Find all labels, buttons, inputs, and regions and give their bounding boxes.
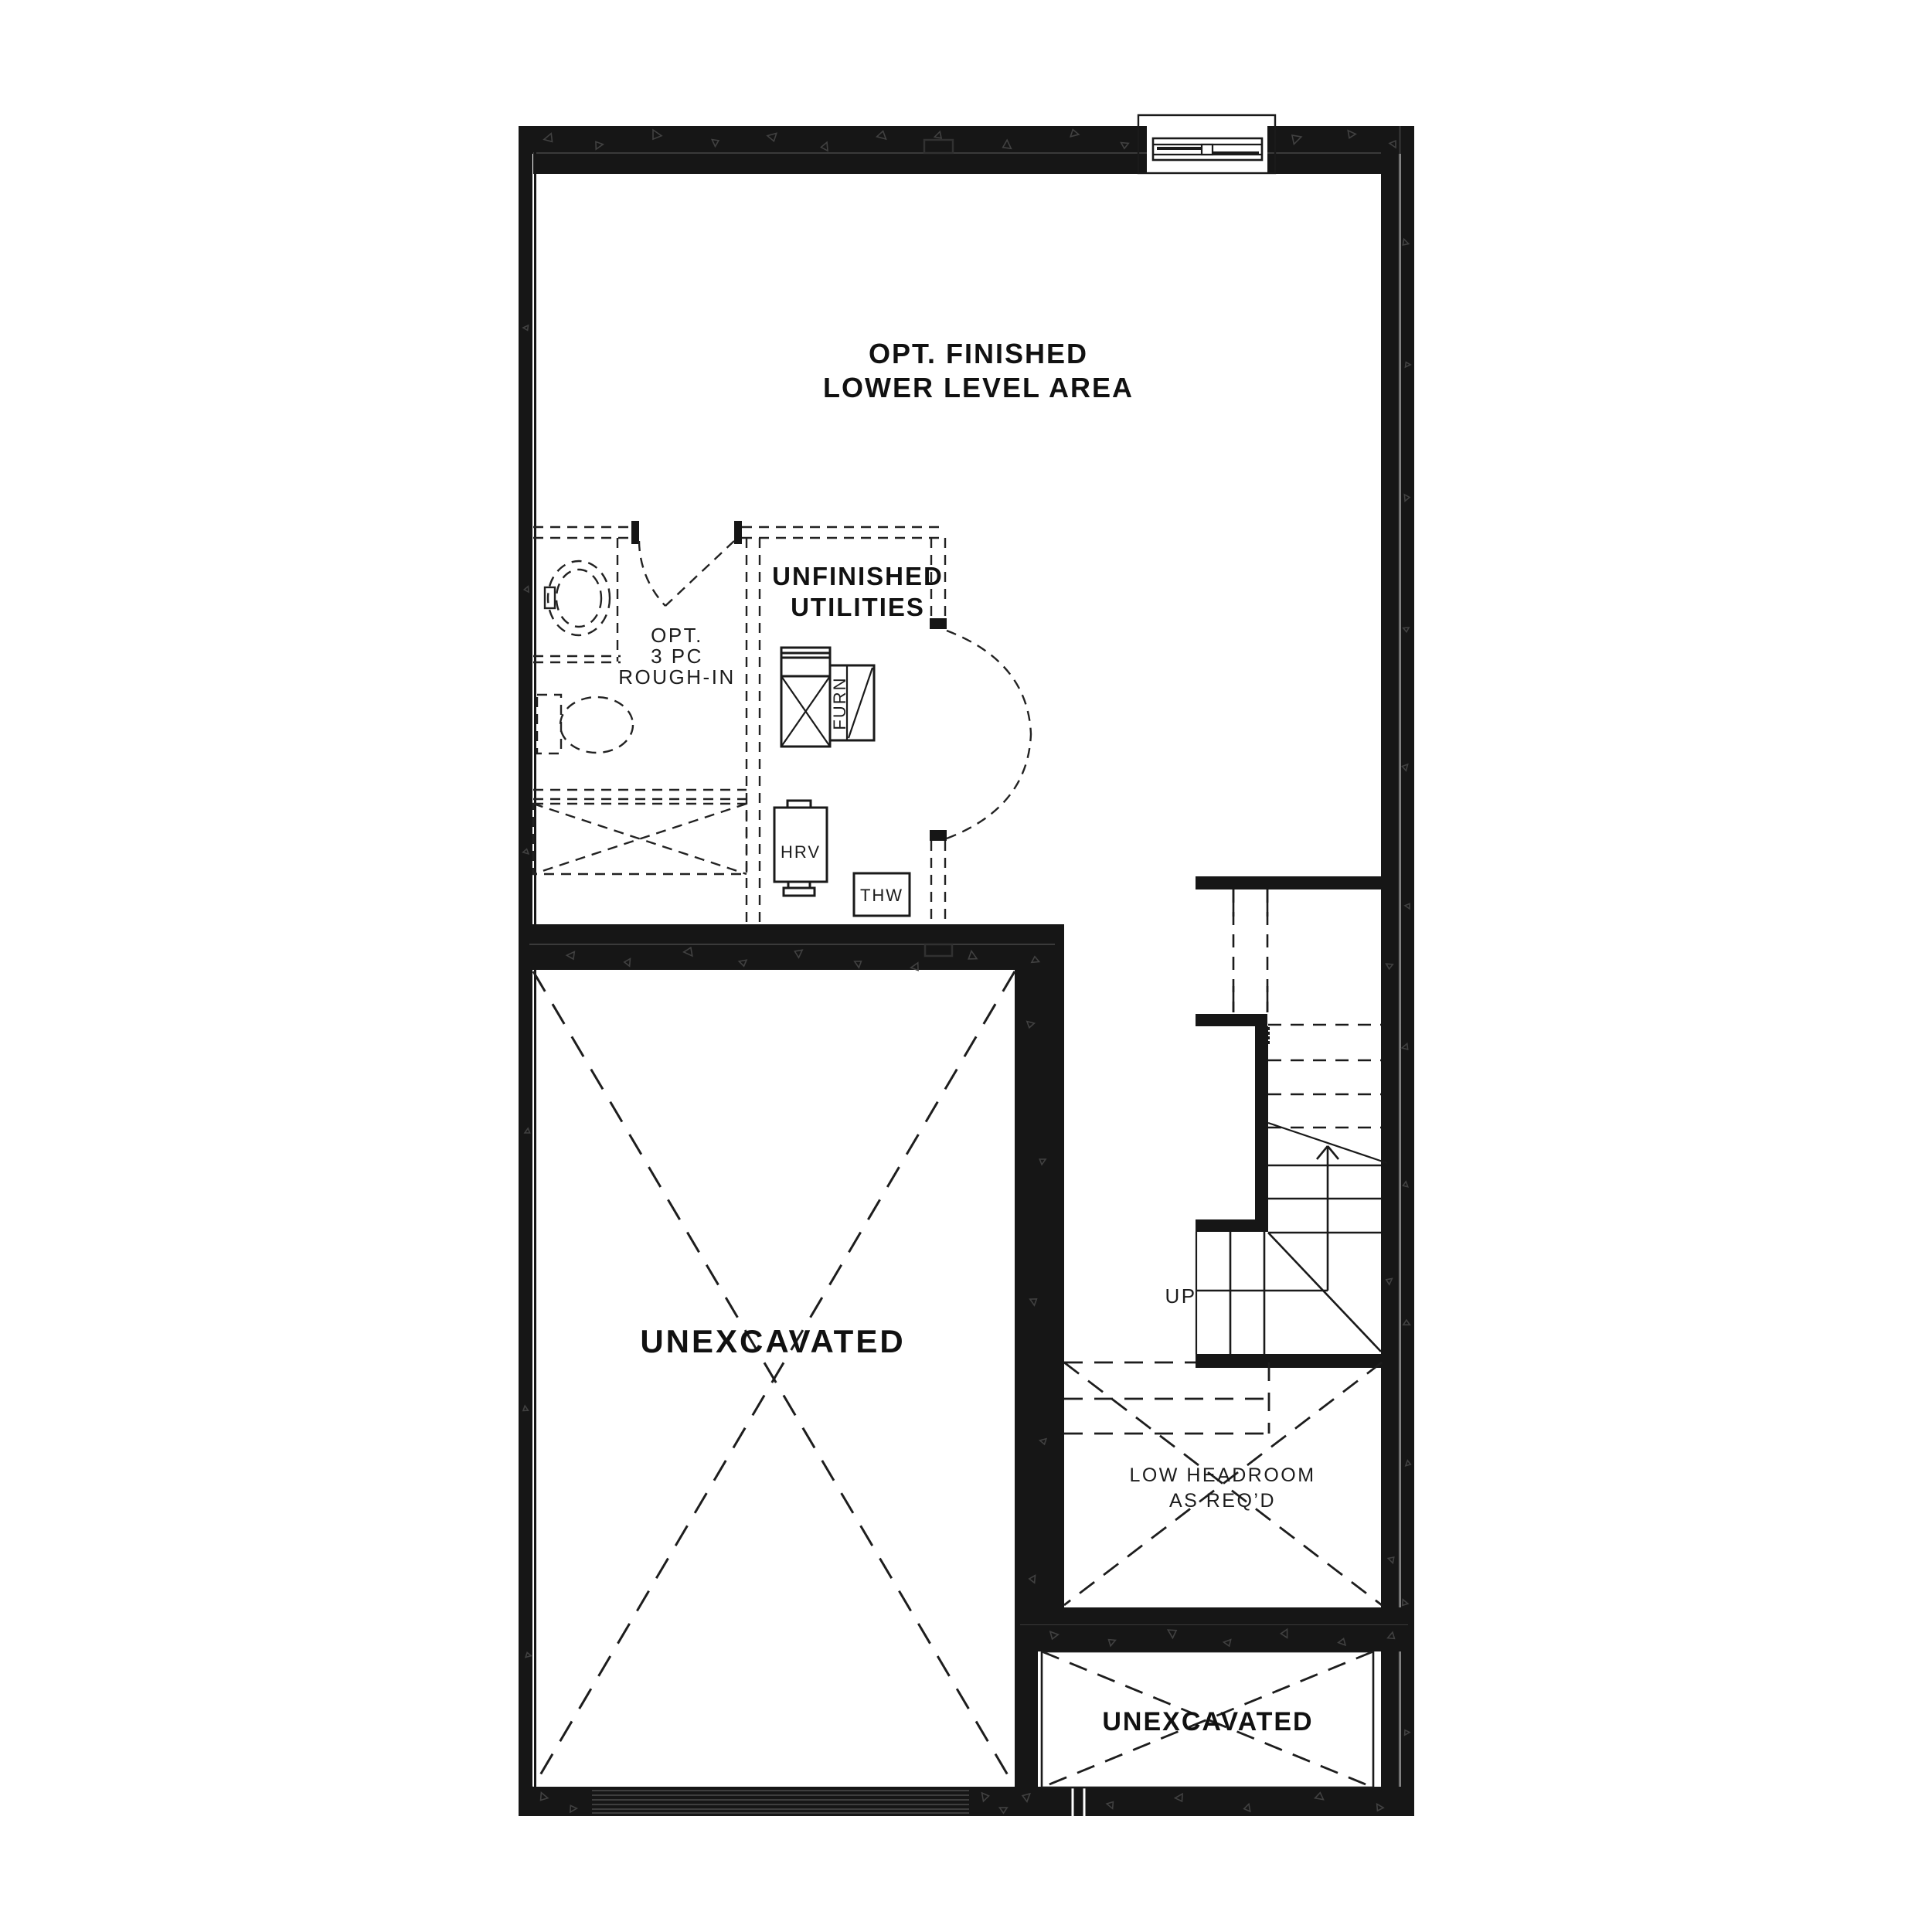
utilities-area: FURN HRV THW UNFINISHED UTILITIES [772,538,1031,924]
bath-crossed-box [533,804,747,874]
door-jamb [930,618,947,629]
window-meeting-rail [1202,145,1213,155]
hrv-label: HRV [781,842,821,862]
furnace-unit: FURN [781,648,874,747]
bath-label-line1: OPT. [651,624,703,647]
stairs-up-label: UP [1165,1284,1196,1308]
interior-wall-notch [925,944,952,956]
bath-label-line2: 3 PC [651,645,703,668]
toilet-fixture [537,695,633,753]
utilities-door-swing-bottom [947,734,1031,838]
floor-plan-page: UP LOW HEADROOM AS REQ’D UNEXCAVATED UNE… [0,0,1932,1932]
thw-label: THW [860,886,903,905]
thw-unit: THW [854,873,910,916]
window-sash-right [1213,151,1259,155]
bathtub-fixture [545,561,610,635]
up-arrow-icon [1317,1146,1338,1291]
egress-window [1138,115,1275,173]
bath-door-leaf [665,541,734,606]
low-headroom-area: LOW HEADROOM AS REQ’D [1064,1362,1382,1605]
winder-line [1268,1233,1381,1352]
unexcavated-small-label: UNEXCAVATED [1102,1707,1313,1736]
door-jamb [631,521,639,544]
floor-plan-drawing: UP LOW HEADROOM AS REQ’D UNEXCAVATED UNE… [0,0,1932,1932]
furnace-label: FURN [830,676,849,730]
utilities-door-swing-top [947,631,1031,734]
finished-area: OPT. FINISHED LOWER LEVEL AREA [823,338,1134,403]
tub-faucet [545,587,555,608]
window-sash-left [1157,147,1202,150]
stair-walls [1196,876,1399,1368]
finished-area-label-line2: LOWER LEVEL AREA [823,372,1134,403]
bath-label-line3: ROUGH-IN [618,665,735,689]
unexcavated-main-room: UNEXCAVATED [533,971,1015,1787]
door-jamb [734,521,742,544]
top-wall-notch [924,140,953,153]
finished-area-label-line1: OPT. FINISHED [869,338,1088,369]
unexcavated-main-label: UNEXCAVATED [640,1323,905,1359]
stairs: UP [1165,889,1387,1354]
door-jamb [930,830,947,841]
utilities-label-line1: UNFINISHED [772,562,944,590]
low-headroom-label-line2: AS REQ’D [1169,1490,1276,1512]
unexcavated-small-room: UNEXCAVATED [1042,1651,1373,1787]
low-headroom-label-line1: LOW HEADROOM [1129,1464,1315,1486]
utilities-label-line2: UTILITIES [791,593,925,621]
hrv-unit: HRV [774,801,827,896]
bath-door-swing [639,541,665,606]
